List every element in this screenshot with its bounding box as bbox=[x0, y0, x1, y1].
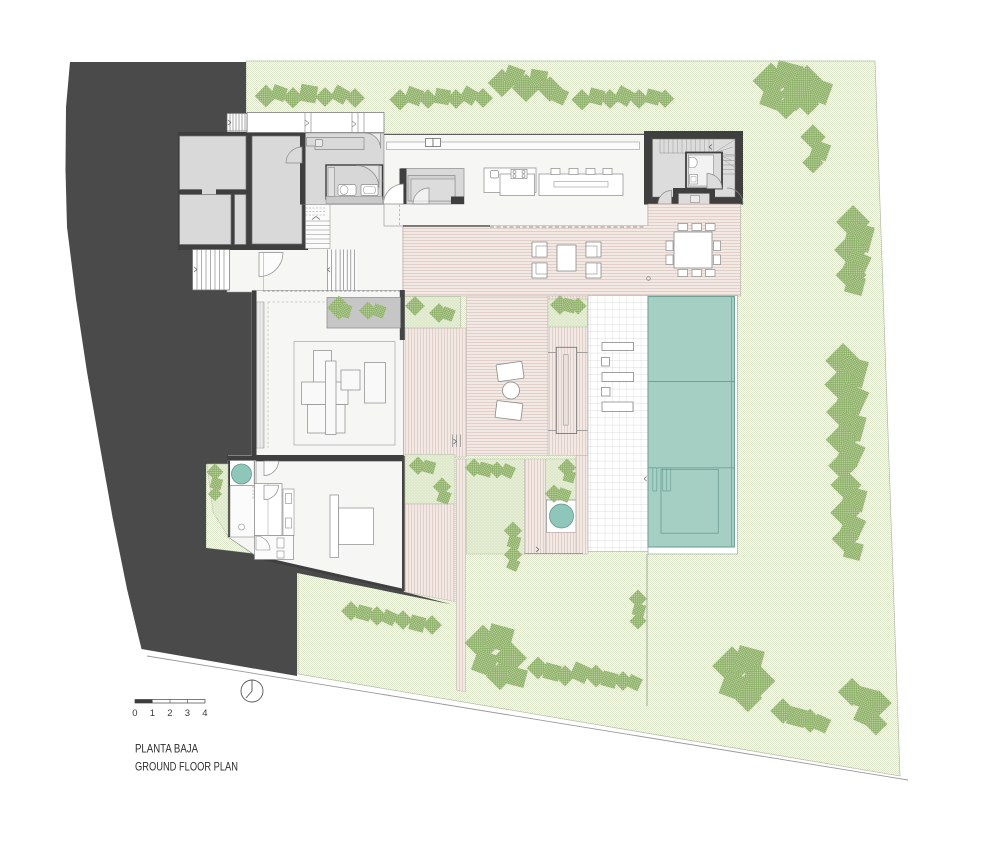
svg-text:2: 2 bbox=[167, 708, 172, 719]
svg-text:GROUND FLOOR PLAN: GROUND FLOOR PLAN bbox=[135, 760, 238, 774]
svg-text:4: 4 bbox=[202, 708, 207, 719]
svg-text:0: 0 bbox=[132, 708, 137, 719]
svg-text:PLANTA BAJA: PLANTA BAJA bbox=[135, 742, 199, 756]
svg-text:1: 1 bbox=[150, 708, 155, 719]
svg-text:3: 3 bbox=[185, 708, 190, 719]
